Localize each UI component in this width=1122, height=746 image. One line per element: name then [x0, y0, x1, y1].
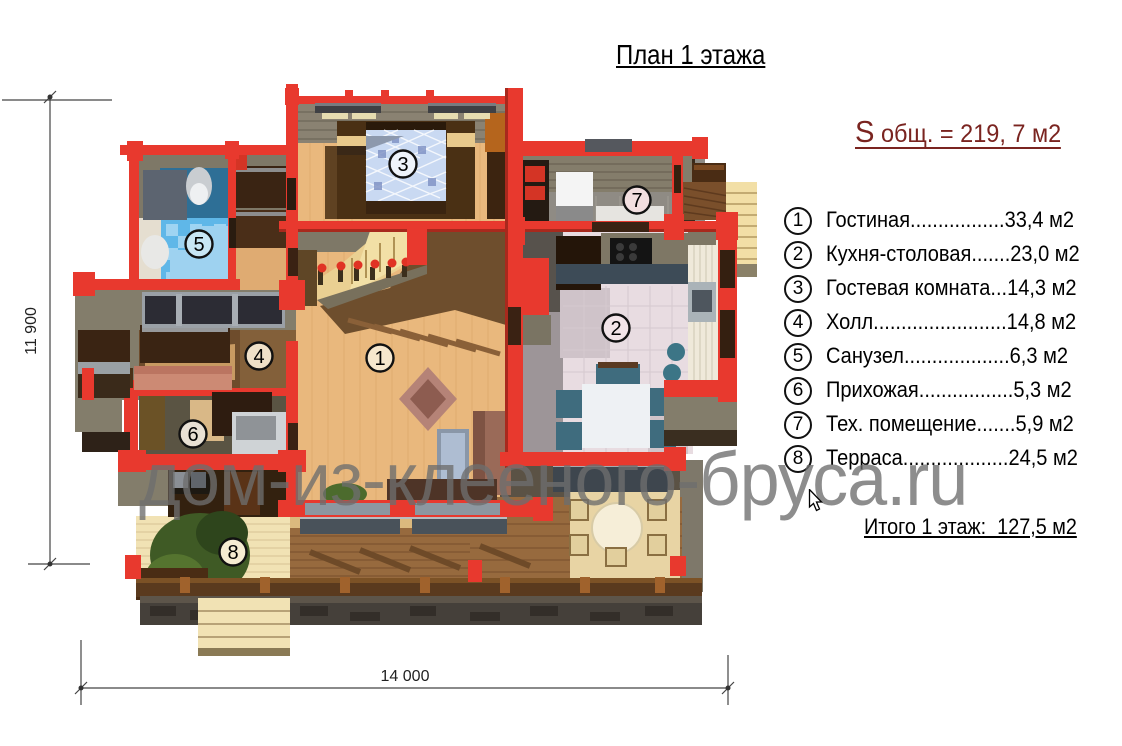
svg-text:5: 5	[193, 234, 204, 256]
svg-text:1: 1	[374, 348, 385, 370]
svg-text:7: 7	[631, 190, 642, 212]
svg-text:11 900: 11 900	[23, 307, 40, 355]
svg-text:8: 8	[227, 542, 238, 564]
svg-text:14 000: 14 000	[381, 668, 430, 685]
svg-text:3: 3	[397, 154, 408, 176]
svg-text:4: 4	[253, 346, 264, 368]
svg-text:2: 2	[610, 318, 621, 340]
